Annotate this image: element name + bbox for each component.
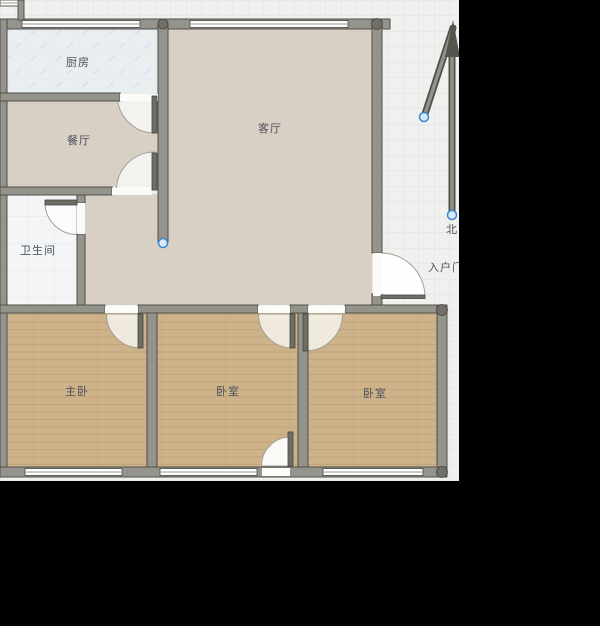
selection-handle-arrow-base[interactable] [448, 211, 457, 220]
wall-segment-mid-1[interactable] [0, 305, 105, 313]
window-topleft-partial[interactable] [0, 0, 18, 6]
door-opening-entrance [373, 253, 382, 296]
door-opening-bedroom-right [308, 306, 345, 313]
window-kitchen[interactable] [22, 21, 140, 28]
door-opening-dining [112, 188, 152, 195]
door-opening-bedroom-center-balcony [262, 468, 290, 476]
wall-segment-master-bedroom2-divider[interactable] [147, 313, 157, 467]
window-bedroom-center[interactable] [160, 469, 257, 476]
room-label-bedroom-right: 卧室 [363, 386, 387, 400]
window-master-bedroom[interactable] [25, 469, 122, 476]
wall-segment-left[interactable] [0, 19, 7, 477]
wall-corner-post [372, 19, 383, 30]
door-leaf-kitchen[interactable] [152, 96, 157, 133]
room-label-dining: 餐厅 [67, 133, 91, 147]
wall-segment-dining-bottom[interactable] [0, 187, 112, 195]
room-label-bedroom-center: 卧室 [216, 384, 240, 398]
bottom-black-mask [0, 481, 600, 626]
screenshot-root: 厨房 餐厅 卫生间 客厅 主卧 卧室 卧室 北 入户门 [0, 0, 600, 626]
window-bedroom-right[interactable] [323, 469, 423, 476]
selection-handle-arrow-tail[interactable] [420, 113, 429, 122]
wall-segment-bathroom-right-lower[interactable] [77, 234, 85, 305]
selection-handle-wall-end[interactable] [159, 239, 168, 248]
wall-segment-topleft-stub[interactable] [18, 0, 24, 20]
door-leaf-entrance[interactable] [381, 295, 425, 299]
wall-segment-bedroom-right-wall[interactable] [437, 305, 447, 477]
wall-segment-kitchen-living-divider[interactable] [158, 25, 168, 242]
entrance-label: 入户门 [428, 260, 464, 274]
door-opening-bathroom [77, 203, 85, 234]
window-living[interactable] [190, 21, 348, 28]
room-label-living: 客厅 [258, 121, 282, 135]
door-opening-bedroom-center [258, 306, 290, 313]
wall-segment-mid-3[interactable] [290, 305, 308, 313]
wall-segment-bathroom-right-upper[interactable] [77, 195, 85, 203]
door-leaf-bedroom-right[interactable] [303, 314, 308, 351]
north-label: 北 [446, 223, 458, 236]
door-leaf-bedroom-center-balcony[interactable] [288, 432, 293, 466]
door-leaf-bathroom[interactable] [45, 200, 77, 205]
door-leaf-dining[interactable] [152, 153, 157, 190]
room-label-bathroom: 卫生间 [20, 243, 56, 257]
wall-segment-mid-4[interactable] [345, 305, 447, 313]
room-label-kitchen: 厨房 [66, 56, 90, 69]
wall-segment-mid-2[interactable] [138, 305, 258, 313]
wall-segment-living-right[interactable] [372, 19, 382, 253]
wall-segment-kitchen-bottom[interactable] [0, 93, 120, 101]
wall-corner-post [158, 19, 168, 29]
room-label-master-bedroom: 主卧 [65, 385, 89, 398]
door-leaf-master-bedroom[interactable] [138, 314, 143, 348]
door-leaf-bedroom-center[interactable] [290, 314, 295, 348]
wall-corner-post [437, 305, 448, 316]
wall-corner-post [437, 467, 448, 478]
floorplan-canvas: 厨房 餐厅 卫生间 客厅 主卧 卧室 卧室 北 入户门 [0, 0, 600, 626]
door-opening-master-bedroom [105, 306, 138, 313]
